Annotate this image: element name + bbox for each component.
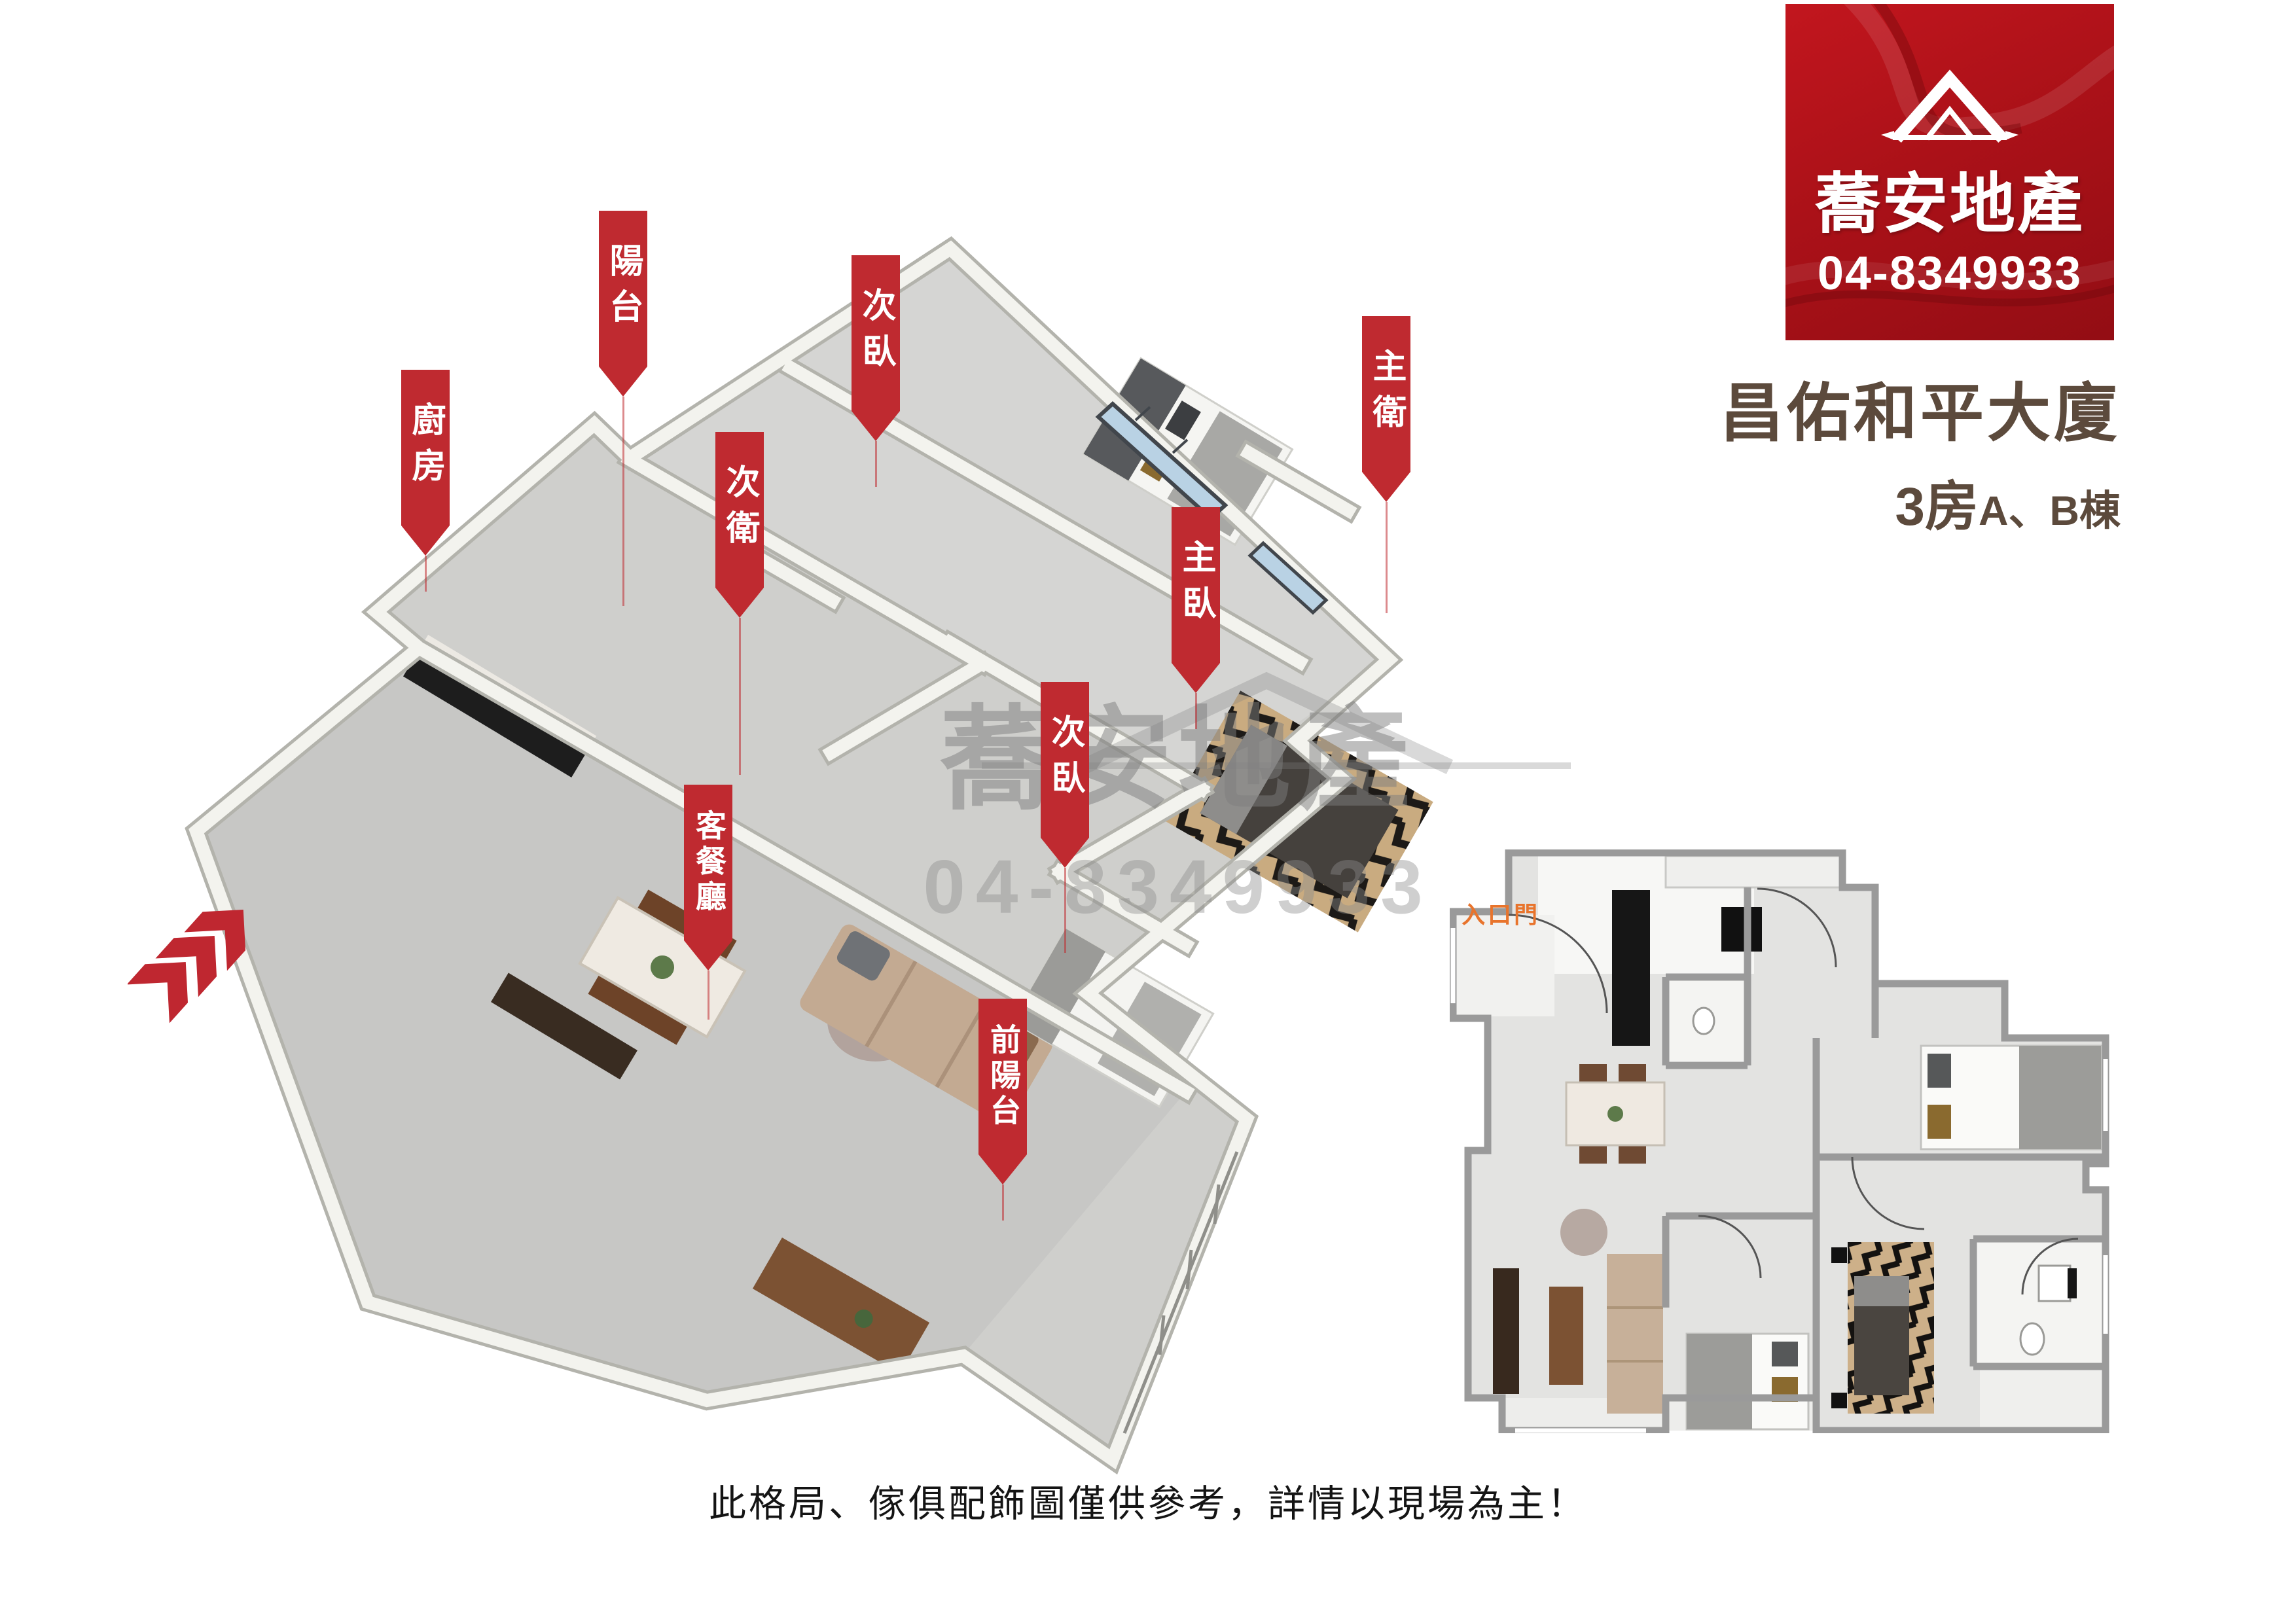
room-label-master-bedroom: 主臥 — [1172, 507, 1220, 729]
label-pointer-icon — [1172, 663, 1220, 693]
room-label-text: 陽台 — [599, 243, 647, 334]
label-leader-line — [1064, 868, 1066, 953]
label-pointer-icon — [599, 366, 647, 397]
room-label-living-dining: 客餐廳 — [684, 785, 732, 1020]
plan2d-sink — [2039, 1266, 2070, 1301]
plan2d-bed2 — [1921, 1046, 2101, 1149]
room-label-text: 主衛 — [1362, 348, 1410, 440]
room-label-kitchen: 廚房 — [401, 370, 450, 592]
room-label-sec-bath: 次衛 — [715, 432, 764, 775]
label-leader-line — [1386, 502, 1388, 613]
listing-header: 昌佑和平大廈 3房A、B棟 — [1676, 361, 2121, 541]
label-leader-line — [1195, 693, 1197, 729]
disclaimer-text: 此格局、傢俱配飾圖僅供參考，詳情以現場為主！ — [0, 1474, 2296, 1527]
label-leader-line — [875, 441, 877, 487]
room-label-front-balcony: 前陽台 — [978, 999, 1027, 1221]
floor-plan-2d: 入口門 — [1450, 849, 2124, 1433]
label-pointer-icon — [715, 588, 764, 618]
plan2d-stove — [1721, 907, 1762, 952]
brand-logo-card: 蕎安地產 04-8349933 — [1785, 4, 2114, 340]
logo-phone-number: 04-8349933 — [1818, 247, 2082, 300]
plan2d-sofa — [1607, 1254, 1663, 1414]
house-roof-icon — [1881, 67, 2018, 144]
room-label-text: 廚房 — [401, 402, 450, 493]
room-label-master-bath: 主衛 — [1362, 316, 1410, 613]
label-leader-line — [1002, 1185, 1004, 1221]
label-leader-line — [622, 397, 624, 606]
entrance-arrows-icon — [128, 897, 278, 1041]
plan2d-entry-floor — [1456, 915, 1554, 1016]
label-pointer-icon — [401, 526, 450, 556]
room-label-sec-bedroom-1: 次臥 — [852, 255, 900, 487]
room-label-text: 主臥 — [1172, 539, 1220, 631]
entry-door-label: 入口門 — [1462, 901, 1540, 928]
plan2d-pouf — [1560, 1209, 1607, 1256]
listing-block: A、B棟 — [1979, 488, 2121, 534]
room-label-text: 次臥 — [1041, 714, 1089, 806]
label-pointer-icon — [1362, 472, 1410, 502]
label-leader-line — [425, 556, 427, 592]
plan2d-toilet — [2020, 1323, 2044, 1355]
listing-title: 昌佑和平大廈 — [1676, 361, 2121, 454]
flyer-canvas: 蕎安地產 04-8349933 廚房 陽台 次臥 次衛 主衛 主臥 次臥 客餐廳 — [0, 0, 2296, 1623]
room-label-text: 次衛 — [715, 464, 764, 556]
plan2d-shower-floor — [1980, 1366, 2104, 1429]
plan2d-counter — [1666, 856, 1842, 887]
logo-brand-text: 蕎安地產 — [1815, 151, 2085, 245]
listing-room-count: 3房 — [1895, 477, 1979, 537]
room-label-sec-bedroom-2: 次臥 — [1041, 682, 1089, 953]
room-label-text: 前陽台 — [978, 1024, 1027, 1130]
label-pointer-icon — [1041, 838, 1089, 868]
plan2d-bed3 — [1687, 1334, 1808, 1429]
room-label-text: 次臥 — [852, 287, 900, 379]
room-label-text: 客餐廳 — [684, 810, 732, 916]
plan2d-fridge-cabinet — [1612, 890, 1650, 1046]
label-pointer-icon — [978, 1154, 1027, 1185]
label-pointer-icon — [684, 940, 732, 971]
label-leader-line — [739, 618, 741, 775]
listing-subtitle: 3房A、B棟 — [1676, 463, 2121, 541]
label-pointer-icon — [852, 411, 900, 441]
plan2d-tv-bench — [1493, 1268, 1519, 1394]
label-leader-line — [708, 971, 709, 1020]
room-label-balcony: 陽台 — [599, 211, 647, 606]
plan2d-coffee-table — [1549, 1287, 1583, 1385]
